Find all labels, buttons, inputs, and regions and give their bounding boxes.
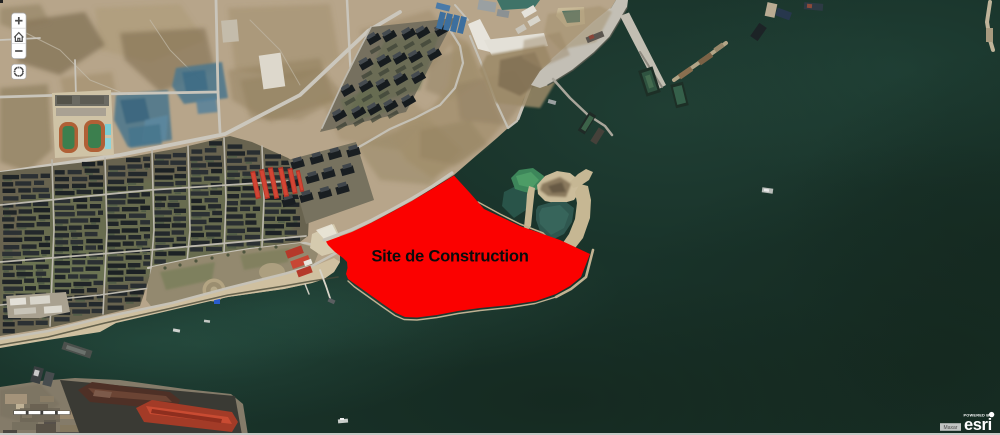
svg-text:Maxar: Maxar xyxy=(944,425,958,431)
svg-text:esri: esri xyxy=(964,416,992,434)
svg-text:Site de Construction: Site de Construction xyxy=(371,247,528,266)
